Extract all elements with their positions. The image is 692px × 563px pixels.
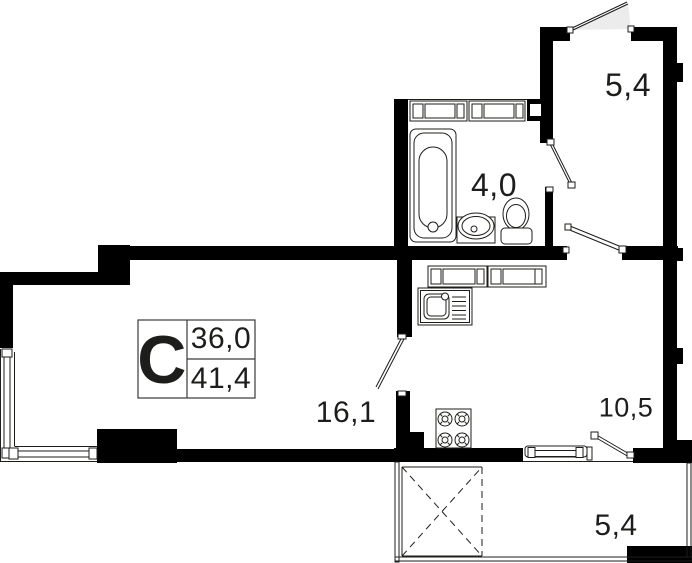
toilet — [501, 198, 532, 244]
room-label-balcony: 5,4 — [594, 511, 637, 541]
room-label-bathroom: 4,0 — [471, 169, 517, 201]
compass-north-label: С — [137, 326, 187, 394]
bathtub — [410, 129, 456, 242]
stove-4-burner — [436, 409, 471, 448]
vent-shaft — [530, 104, 542, 117]
room-label-living-room: 16,1 — [316, 398, 376, 428]
room-label-kitchen: 10,5 — [599, 395, 654, 422]
legend-value-upper: 36,0 — [191, 324, 251, 354]
kitchen-sink — [418, 288, 472, 325]
washbasin — [457, 213, 495, 243]
floor-plan: С 36,0 41,4 5,4 4,0 16,1 10,5 5,4 — [0, 0, 692, 563]
kitchen-counter — [428, 266, 546, 287]
balcony-hatch — [402, 467, 482, 556]
wardrobe-cabinets — [408, 100, 527, 122]
floor-plan-drawing — [0, 0, 692, 563]
room-label-hallway: 5,4 — [605, 69, 651, 101]
legend-value-lower: 41,4 — [191, 364, 251, 394]
walls — [0, 27, 692, 563]
